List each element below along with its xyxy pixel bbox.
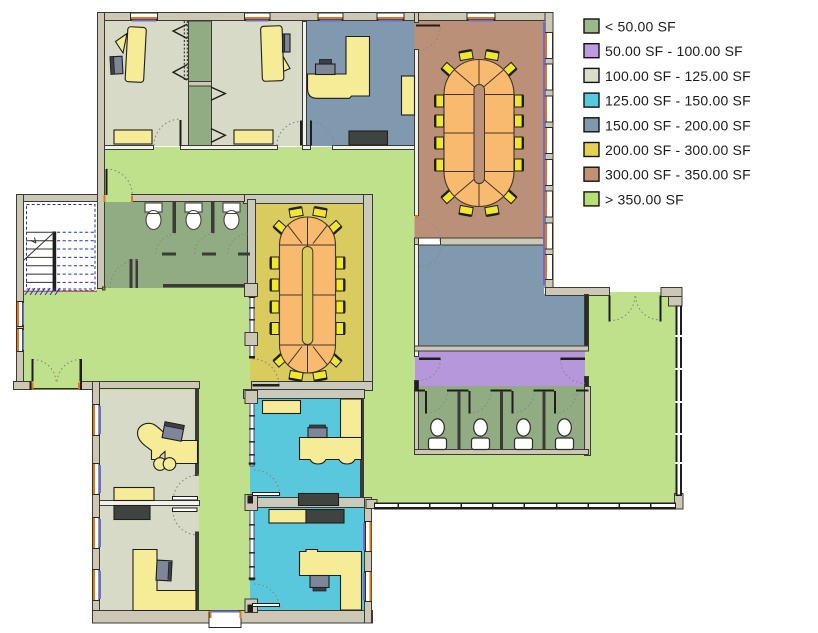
- svg-text:150.00 SF - 200.00 SF: 150.00 SF - 200.00 SF: [605, 117, 751, 133]
- svg-text:100.00 SF - 125.00 SF: 100.00 SF - 125.00 SF: [605, 68, 751, 84]
- svg-text:125.00 SF - 150.00 SF: 125.00 SF - 150.00 SF: [605, 93, 751, 109]
- svg-text:50.00 SF - 100.00 SF: 50.00 SF - 100.00 SF: [605, 43, 743, 59]
- svg-text:300.00 SF - 350.00 SF: 300.00 SF - 350.00 SF: [605, 167, 751, 183]
- svg-text:> 350.00 SF: > 350.00 SF: [605, 191, 684, 207]
- svg-text:200.00 SF - 300.00 SF: 200.00 SF - 300.00 SF: [605, 142, 751, 158]
- svg-text:< 50.00 SF: < 50.00 SF: [605, 19, 676, 35]
